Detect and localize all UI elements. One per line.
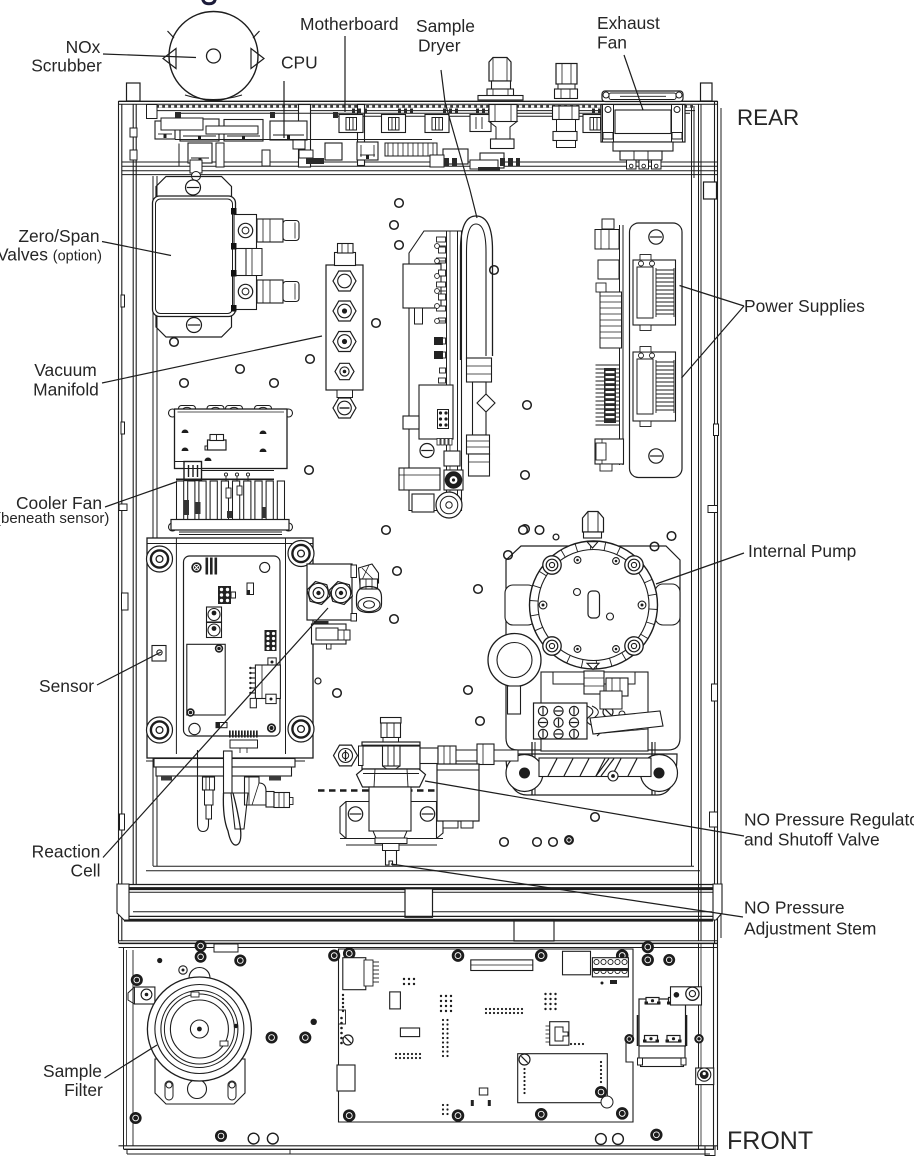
- svg-text:Exhaust: Exhaust: [597, 13, 660, 33]
- svg-text:Zero/Span: Zero/Span: [18, 226, 99, 246]
- svg-text:REAR: REAR: [737, 105, 799, 130]
- svg-text:NOx: NOx: [66, 37, 101, 57]
- svg-text:Reaction: Reaction: [32, 842, 101, 862]
- svg-text:Adjustment Stem: Adjustment Stem: [744, 919, 876, 939]
- svg-text:Internal Pump: Internal Pump: [748, 541, 856, 561]
- svg-text:Sensor: Sensor: [39, 676, 94, 696]
- svg-text:FRONT: FRONT: [727, 1127, 813, 1155]
- svg-text:(beneath sensor): (beneath sensor): [0, 510, 109, 527]
- svg-text:Filter: Filter: [64, 1080, 103, 1100]
- svg-text:Vacuum: Vacuum: [34, 360, 97, 380]
- svg-text:and Shutoff Valve: and Shutoff Valve: [744, 830, 880, 850]
- svg-text:Sample: Sample: [43, 1061, 102, 1081]
- svg-text:Manifold: Manifold: [33, 380, 99, 400]
- svg-text:NO Pressure: NO Pressure: [744, 898, 845, 918]
- svg-text:Power Supplies: Power Supplies: [744, 296, 865, 316]
- svg-text:Fan: Fan: [597, 33, 627, 53]
- svg-text:Motherboard: Motherboard: [300, 14, 399, 34]
- svg-text:Scrubber: Scrubber: [31, 56, 102, 76]
- svg-text:CPU: CPU: [281, 53, 318, 73]
- svg-text:NO Pressure Regulator: NO Pressure Regulator: [744, 810, 914, 830]
- svg-text:Sample: Sample: [416, 16, 475, 36]
- svg-text:Cell: Cell: [71, 861, 101, 881]
- svg-text:Dryer: Dryer: [418, 36, 461, 56]
